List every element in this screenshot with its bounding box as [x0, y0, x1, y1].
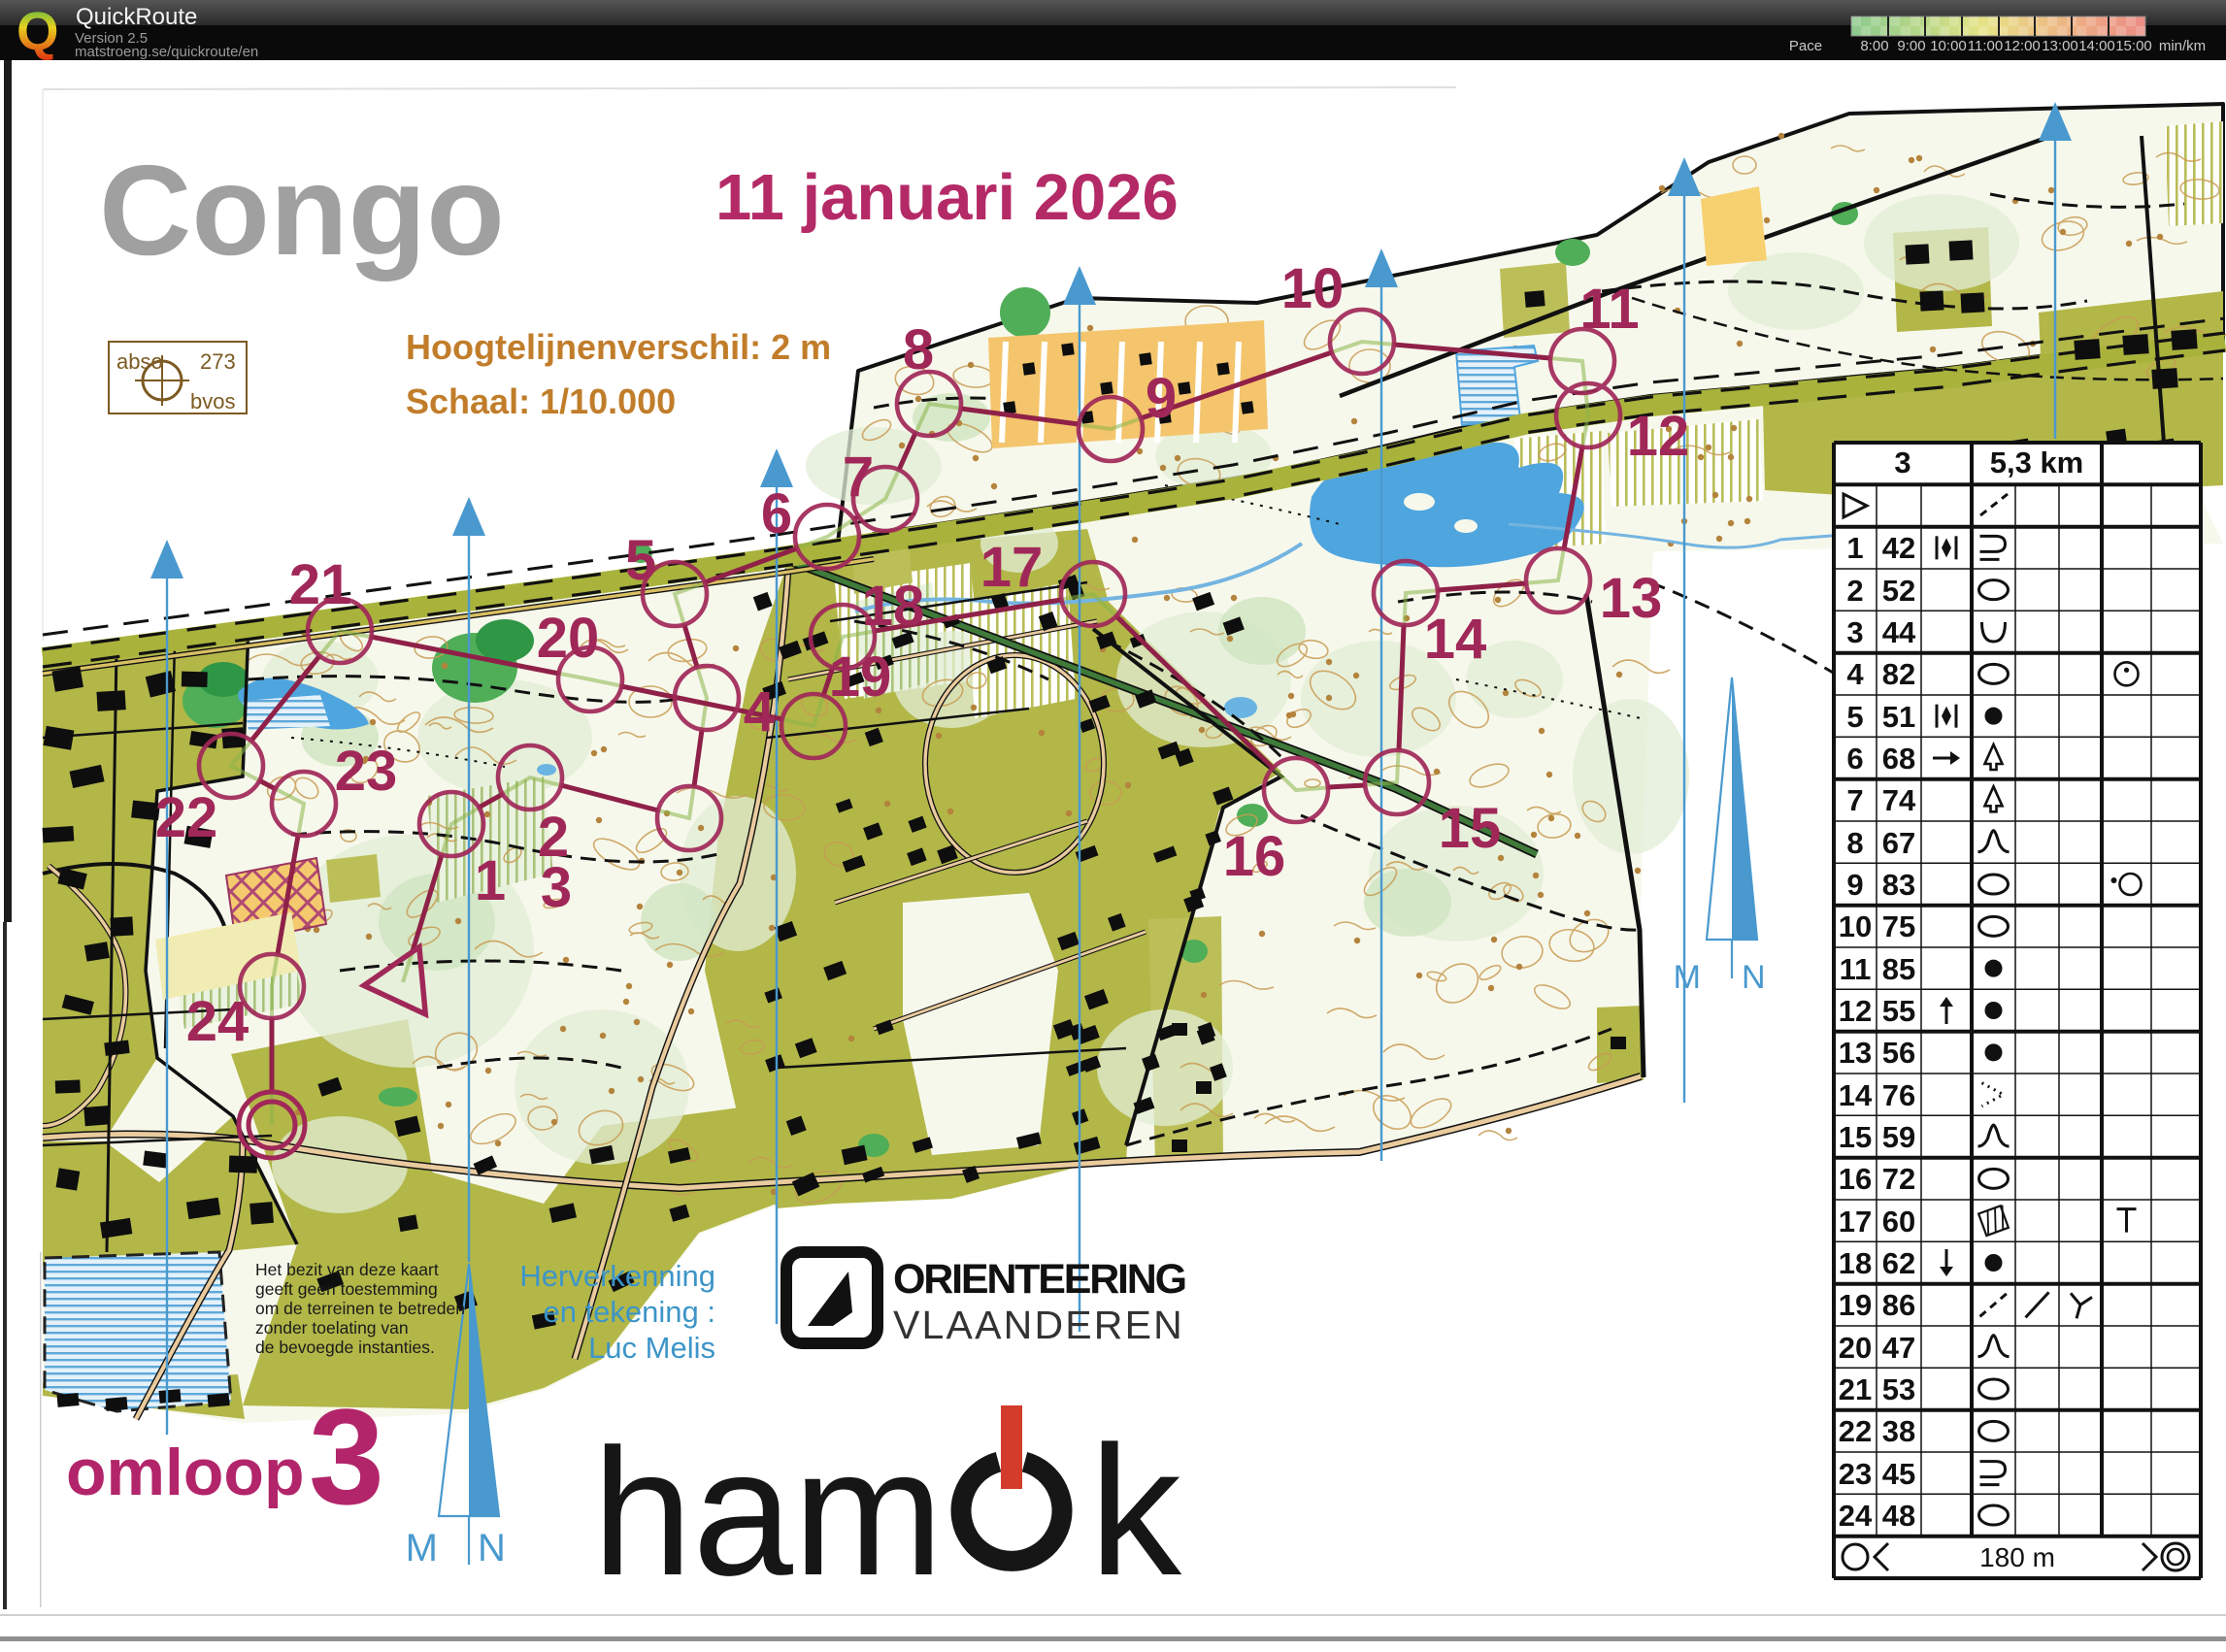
svg-text:Pace: Pace — [1789, 38, 1822, 54]
svg-text:72: 72 — [1882, 1162, 1915, 1196]
svg-text:matstroeng.se/quickroute/en: matstroeng.se/quickroute/en — [75, 44, 258, 60]
svg-text:21: 21 — [289, 553, 352, 616]
svg-text:23: 23 — [1839, 1457, 1872, 1491]
svg-text:Hoogtelijnenverschil: 2 m: Hoogtelijnenverschil: 2 m — [406, 327, 831, 367]
svg-text:17: 17 — [980, 536, 1044, 599]
svg-text:ham: ham — [592, 1412, 944, 1613]
svg-text:Q: Q — [17, 0, 59, 61]
svg-text:QuickRoute: QuickRoute — [76, 4, 197, 30]
svg-text:15: 15 — [1439, 797, 1502, 860]
svg-text:3: 3 — [541, 856, 572, 919]
svg-text:44: 44 — [1882, 615, 1916, 649]
svg-text:14:00: 14:00 — [2078, 38, 2115, 54]
svg-text:83: 83 — [1882, 868, 1915, 902]
svg-text:42: 42 — [1882, 531, 1915, 565]
svg-text:abso: abso — [116, 349, 163, 374]
svg-text:21: 21 — [1839, 1372, 1872, 1406]
svg-text:Schaal: 1/10.000: Schaal: 1/10.000 — [406, 381, 676, 421]
svg-text:9:00: 9:00 — [1897, 38, 1925, 54]
svg-text:om de terreinen te betreden: om de terreinen te betreden — [255, 1299, 465, 1318]
svg-text:23: 23 — [335, 740, 398, 803]
svg-text:Het bezit van deze kaart: Het bezit van deze kaart — [255, 1260, 439, 1279]
svg-text:9: 9 — [1846, 868, 1863, 902]
svg-text:8:00: 8:00 — [1860, 38, 1888, 54]
svg-text:53: 53 — [1882, 1372, 1915, 1406]
svg-text:N: N — [478, 1527, 506, 1569]
svg-text:45: 45 — [1882, 1457, 1915, 1491]
svg-text:86: 86 — [1882, 1288, 1915, 1322]
svg-text:48: 48 — [1882, 1499, 1915, 1533]
svg-text:62: 62 — [1882, 1246, 1915, 1280]
svg-text:22: 22 — [1839, 1414, 1872, 1448]
svg-text:M: M — [1674, 959, 1701, 996]
svg-text:20: 20 — [537, 607, 600, 670]
svg-text:60: 60 — [1882, 1205, 1915, 1239]
svg-text:bvos: bvos — [190, 389, 235, 413]
svg-text:5: 5 — [625, 529, 656, 592]
svg-text:min/km: min/km — [2159, 38, 2206, 54]
svg-text:67: 67 — [1882, 826, 1915, 860]
svg-text:zonder toelating van: zonder toelating van — [255, 1318, 409, 1338]
svg-text:6: 6 — [761, 482, 792, 545]
svg-text:51: 51 — [1882, 700, 1915, 734]
svg-text:75: 75 — [1882, 909, 1915, 943]
svg-text:12: 12 — [1839, 994, 1872, 1028]
svg-text:273: 273 — [200, 349, 236, 374]
svg-text:VLAANDEREN: VLAANDEREN — [893, 1303, 1184, 1347]
svg-text:85: 85 — [1882, 952, 1915, 986]
svg-text:14: 14 — [1424, 608, 1487, 671]
svg-text:Herverkenning: Herverkenning — [519, 1259, 715, 1293]
svg-text:11: 11 — [1840, 952, 1872, 986]
svg-text:4: 4 — [1846, 657, 1864, 691]
svg-text:15:00: 15:00 — [2115, 38, 2152, 54]
svg-text:k: k — [1089, 1408, 1182, 1614]
svg-text:13:00: 13:00 — [2042, 38, 2078, 54]
svg-text:12: 12 — [1627, 405, 1690, 468]
svg-text:19: 19 — [1839, 1288, 1872, 1322]
svg-text:13: 13 — [1600, 567, 1663, 630]
svg-text:76: 76 — [1882, 1078, 1915, 1112]
svg-text:8: 8 — [903, 318, 934, 381]
svg-text:68: 68 — [1882, 742, 1915, 776]
svg-text:24: 24 — [1839, 1499, 1873, 1533]
svg-text:5: 5 — [1846, 700, 1863, 734]
svg-text:16: 16 — [1223, 825, 1286, 888]
svg-text:19: 19 — [829, 645, 892, 709]
svg-text:10: 10 — [1281, 257, 1345, 320]
svg-text:9: 9 — [1146, 367, 1177, 430]
svg-text:52: 52 — [1882, 574, 1915, 608]
svg-text:14: 14 — [1839, 1078, 1873, 1112]
svg-text:3: 3 — [1846, 615, 1863, 649]
svg-text:N: N — [1742, 959, 1766, 996]
svg-text:59: 59 — [1882, 1120, 1915, 1154]
svg-text:7: 7 — [1846, 783, 1863, 817]
svg-text:17: 17 — [1839, 1205, 1872, 1239]
svg-text:20: 20 — [1839, 1331, 1872, 1365]
svg-text:47: 47 — [1882, 1331, 1915, 1365]
svg-text:12:00: 12:00 — [2004, 38, 2041, 54]
svg-text:11 januari 2026: 11 januari 2026 — [715, 161, 1179, 234]
svg-text:16: 16 — [1839, 1162, 1872, 1196]
svg-text:de bevoegde instanties.: de bevoegde instanties. — [255, 1338, 435, 1357]
svg-text:3: 3 — [309, 1380, 384, 1533]
svg-text:geeft geen toestemming: geeft geen toestemming — [255, 1279, 438, 1299]
svg-text:56: 56 — [1882, 1036, 1915, 1070]
svg-text:5,3 km: 5,3 km — [1990, 446, 2084, 479]
svg-text:M: M — [406, 1527, 438, 1569]
svg-text:11: 11 — [1579, 278, 1639, 341]
svg-text:1: 1 — [1846, 531, 1863, 565]
svg-text:Luc Melis: Luc Melis — [588, 1331, 715, 1365]
svg-text:ORIENTEERING: ORIENTEERING — [893, 1256, 1185, 1303]
svg-text:Congo: Congo — [99, 139, 505, 281]
svg-text:82: 82 — [1882, 657, 1915, 691]
svg-text:22: 22 — [155, 786, 218, 849]
svg-text:15: 15 — [1839, 1120, 1872, 1154]
svg-text:10: 10 — [1839, 909, 1872, 943]
svg-text:en tekening :: en tekening : — [543, 1295, 715, 1329]
svg-text:74: 74 — [1882, 783, 1916, 817]
svg-text:18: 18 — [862, 575, 925, 638]
svg-text:6: 6 — [1846, 742, 1863, 776]
svg-text:38: 38 — [1882, 1414, 1915, 1448]
svg-text:18: 18 — [1839, 1246, 1872, 1280]
svg-text:3: 3 — [1894, 446, 1910, 479]
svg-text:7: 7 — [843, 446, 874, 509]
svg-text:2: 2 — [1846, 574, 1863, 608]
svg-text:10:00: 10:00 — [1930, 38, 1967, 54]
svg-text:24: 24 — [186, 990, 249, 1053]
svg-text:55: 55 — [1882, 994, 1915, 1028]
svg-text:4: 4 — [744, 680, 775, 743]
svg-text:180 m: 180 m — [1979, 1542, 2055, 1572]
svg-text:13: 13 — [1839, 1036, 1872, 1070]
svg-text:8: 8 — [1846, 826, 1863, 860]
svg-text:1: 1 — [475, 849, 506, 912]
svg-text:11:00: 11:00 — [1968, 38, 2003, 54]
svg-text:omloop: omloop — [66, 1436, 305, 1509]
